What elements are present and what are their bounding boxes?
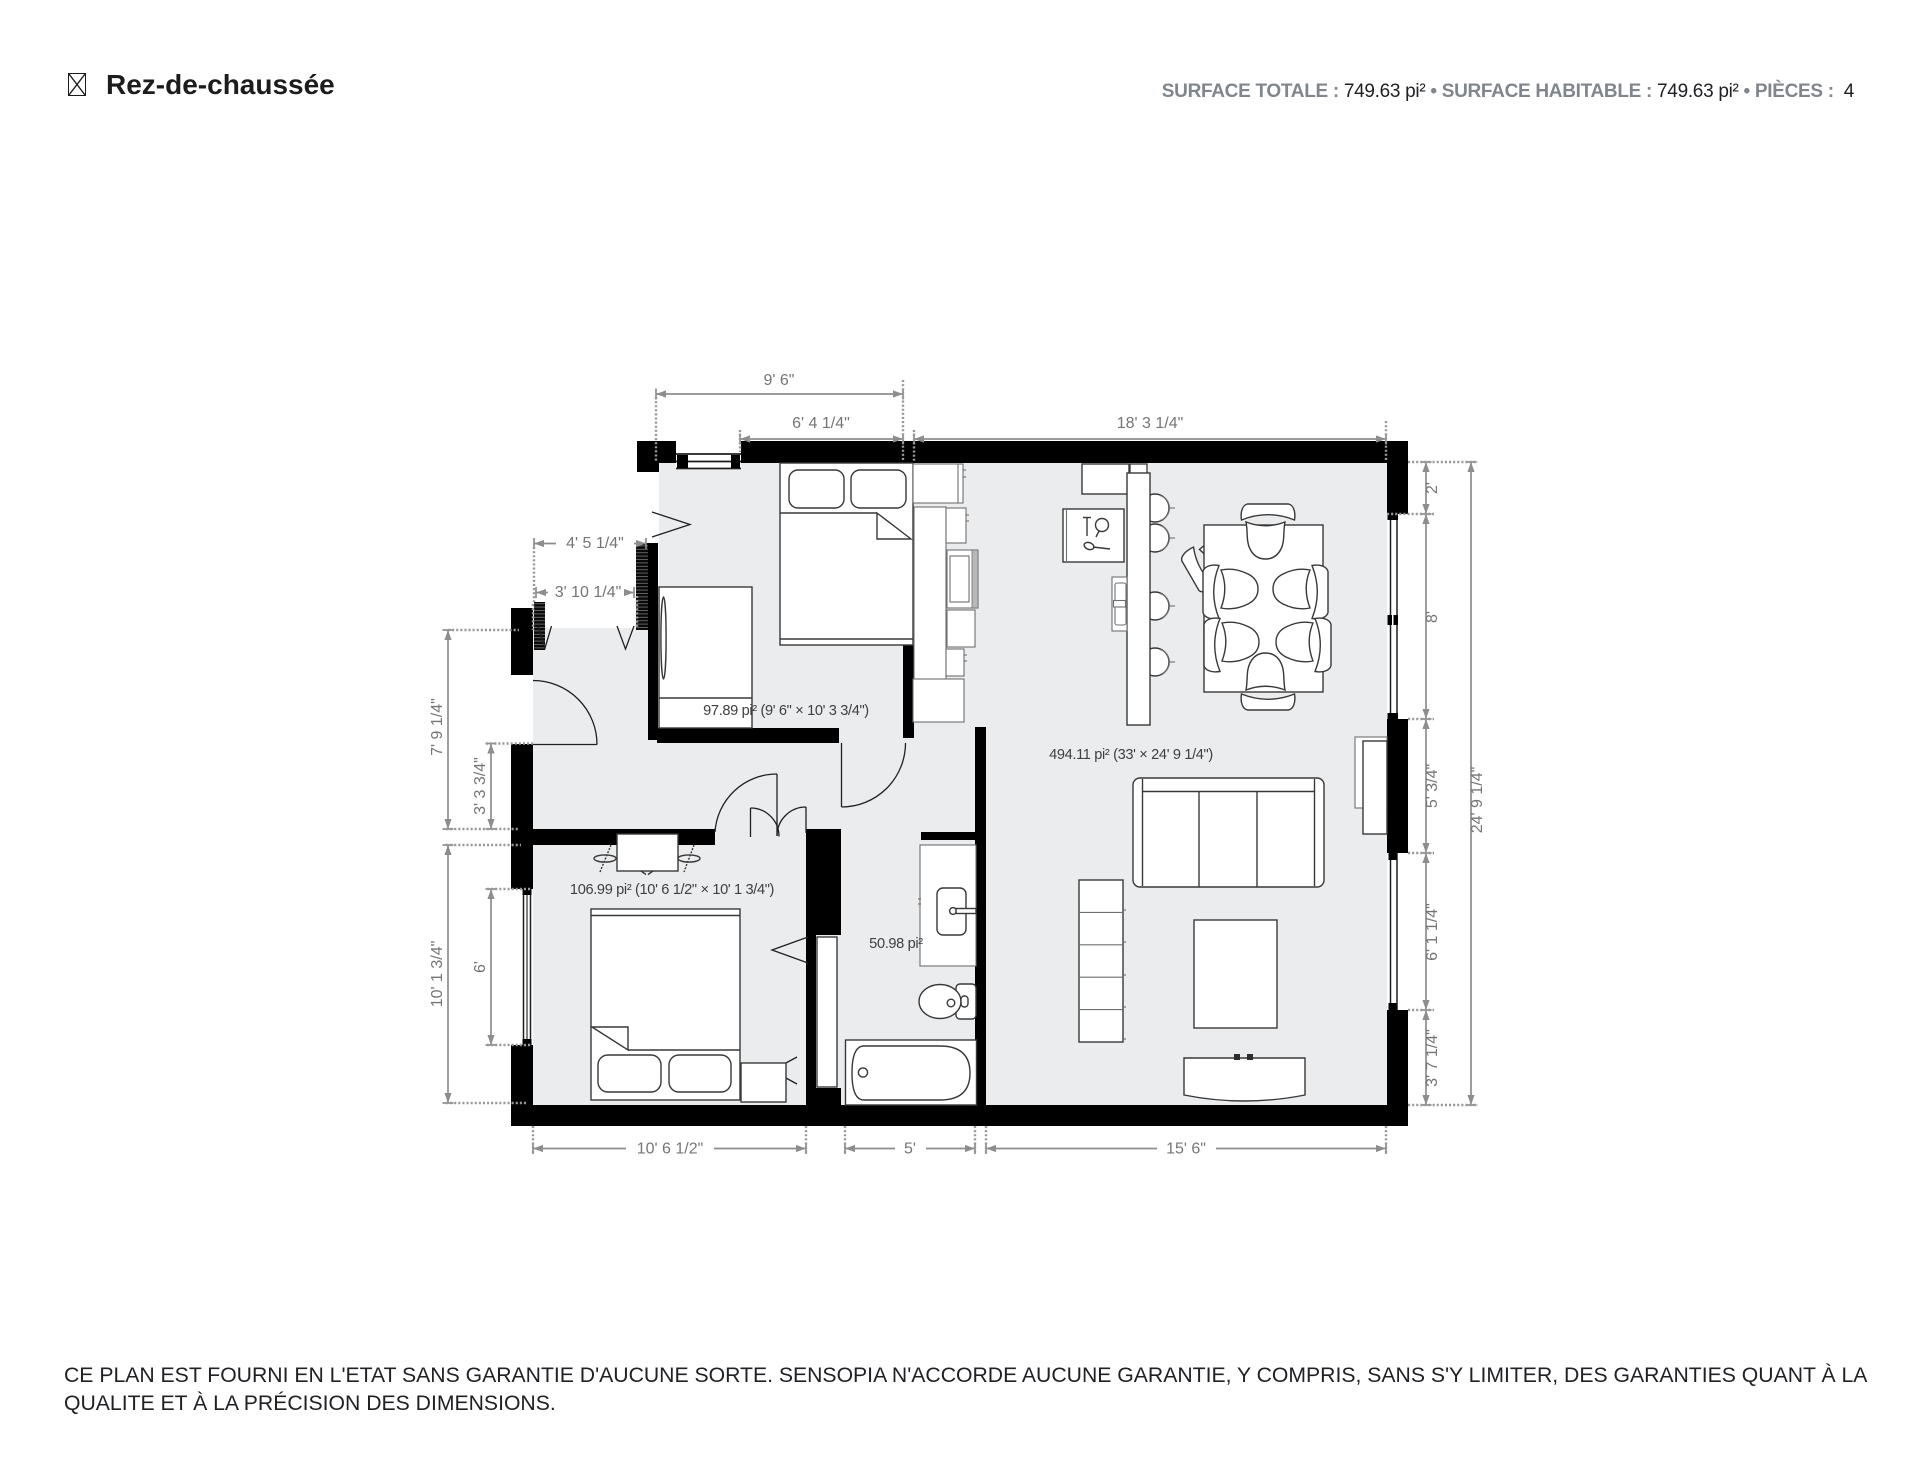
svg-text:4' 5 1/4": 4' 5 1/4" [566, 535, 624, 552]
svg-text:10' 1 3/4": 10' 1 3/4" [429, 941, 446, 1008]
svg-text:10' 6 1/2": 10' 6 1/2" [637, 1141, 704, 1158]
svg-text:6': 6' [472, 961, 489, 973]
svg-text:9' 6": 9' 6" [764, 372, 795, 389]
svg-text:15' 6": 15' 6" [1166, 1141, 1206, 1158]
svg-text:5': 5' [904, 1141, 916, 1158]
svg-text:6' 4 1/4": 6' 4 1/4" [792, 415, 850, 432]
svg-text:3' 7 1/4": 3' 7 1/4" [1424, 1029, 1441, 1087]
svg-text:24' 9 1/4": 24' 9 1/4" [1469, 767, 1486, 834]
svg-text:8': 8' [1424, 611, 1441, 623]
svg-text:106.99 pi² (10' 6 1/2" × 10' 1: 106.99 pi² (10' 6 1/2" × 10' 1 3/4") [570, 882, 774, 898]
svg-text:18' 3 1/4": 18' 3 1/4" [1117, 415, 1184, 432]
svg-text:494.11 pi² (33' × 24' 9 1/4"): 494.11 pi² (33' × 24' 9 1/4") [1049, 747, 1213, 763]
svg-text:5' 3/4": 5' 3/4" [1424, 764, 1441, 808]
svg-text:2': 2' [1424, 482, 1441, 494]
svg-text:50.98 pi²: 50.98 pi² [869, 936, 923, 952]
svg-text:6' 1 1/4": 6' 1 1/4" [1424, 903, 1441, 961]
svg-text:3' 3 3/4": 3' 3 3/4" [472, 757, 489, 815]
svg-text:7' 9 1/4": 7' 9 1/4" [429, 698, 446, 756]
svg-text:97.89 pi² (9' 6" × 10' 3 3/4"): 97.89 pi² (9' 6" × 10' 3 3/4") [703, 703, 869, 719]
svg-text:3' 10 1/4": 3' 10 1/4" [555, 584, 622, 601]
